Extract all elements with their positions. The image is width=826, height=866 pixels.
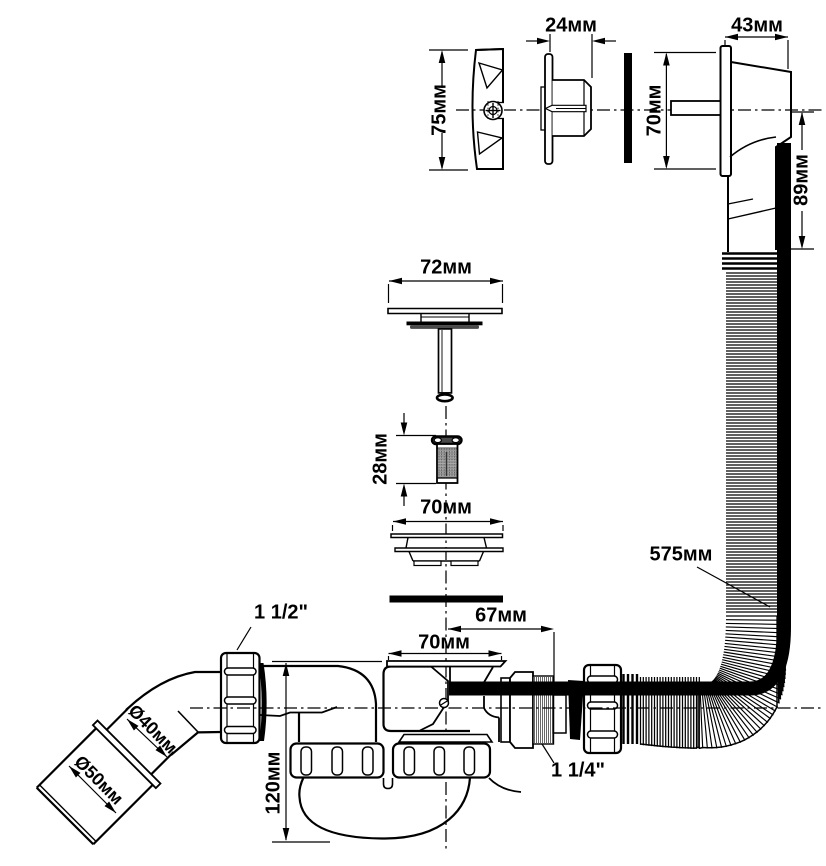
svg-text:89мм: 89мм	[790, 154, 812, 206]
svg-text:575мм: 575мм	[650, 543, 713, 565]
svg-text:28мм: 28мм	[369, 433, 391, 485]
svg-text:67мм: 67мм	[475, 604, 527, 626]
svg-text:70мм: 70мм	[643, 85, 665, 137]
svg-text:24мм: 24мм	[545, 14, 597, 36]
svg-text:70мм: 70мм	[418, 631, 470, 653]
svg-text:70мм: 70мм	[420, 496, 472, 518]
svg-text:72мм: 72мм	[420, 256, 472, 278]
svg-text:1 1/4": 1 1/4"	[551, 759, 605, 781]
svg-text:75мм: 75мм	[428, 84, 450, 136]
svg-text:1 1/2": 1 1/2"	[254, 601, 308, 623]
svg-text:120мм: 120мм	[262, 752, 284, 815]
svg-text:43мм: 43мм	[731, 14, 783, 36]
